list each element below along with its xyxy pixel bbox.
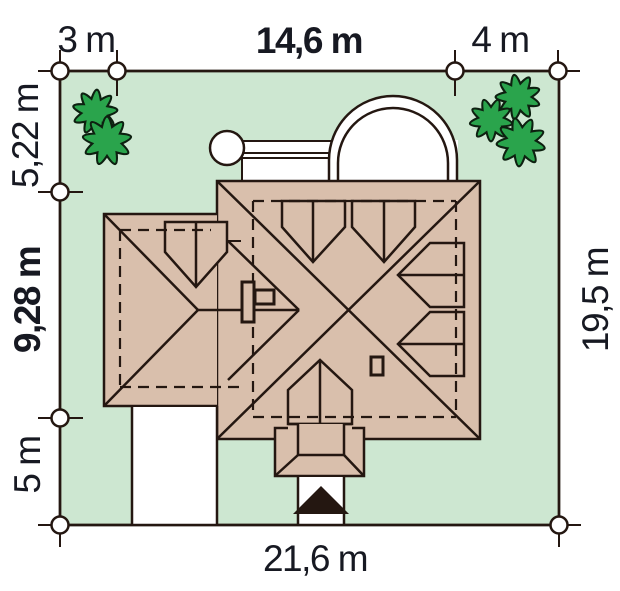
round-terrace-element (210, 131, 244, 165)
dim-right-side: 19,5 m (575, 248, 616, 352)
dim-top-right: 4 m (471, 19, 528, 60)
survey-marker (550, 63, 567, 80)
survey-marker (52, 184, 69, 201)
survey-marker (109, 63, 126, 80)
survey-marker (551, 517, 568, 534)
site-plan-drawing: 3 m 14,6 m 4 m 5,22 m 9,28 m 5 m 19,5 m … (0, 0, 620, 591)
dim-top-left: 3 m (57, 19, 114, 60)
dim-left-bottom: 5 m (7, 436, 48, 493)
site-plan: 3 m 14,6 m 4 m 5,22 m 9,28 m 5 m 19,5 m … (0, 0, 620, 591)
dim-bottom: 21,6 m (263, 538, 367, 579)
dim-left-top: 5,22 m (5, 84, 46, 188)
survey-marker (52, 63, 69, 80)
chimney-small (371, 357, 383, 375)
porch-roof (275, 424, 364, 476)
driveway (132, 406, 217, 525)
survey-marker (447, 63, 464, 80)
survey-marker (52, 410, 69, 427)
dim-top-center: 14,6 m (256, 20, 362, 61)
dim-left-middle: 9,28 m (7, 247, 48, 353)
survey-marker (52, 517, 69, 534)
